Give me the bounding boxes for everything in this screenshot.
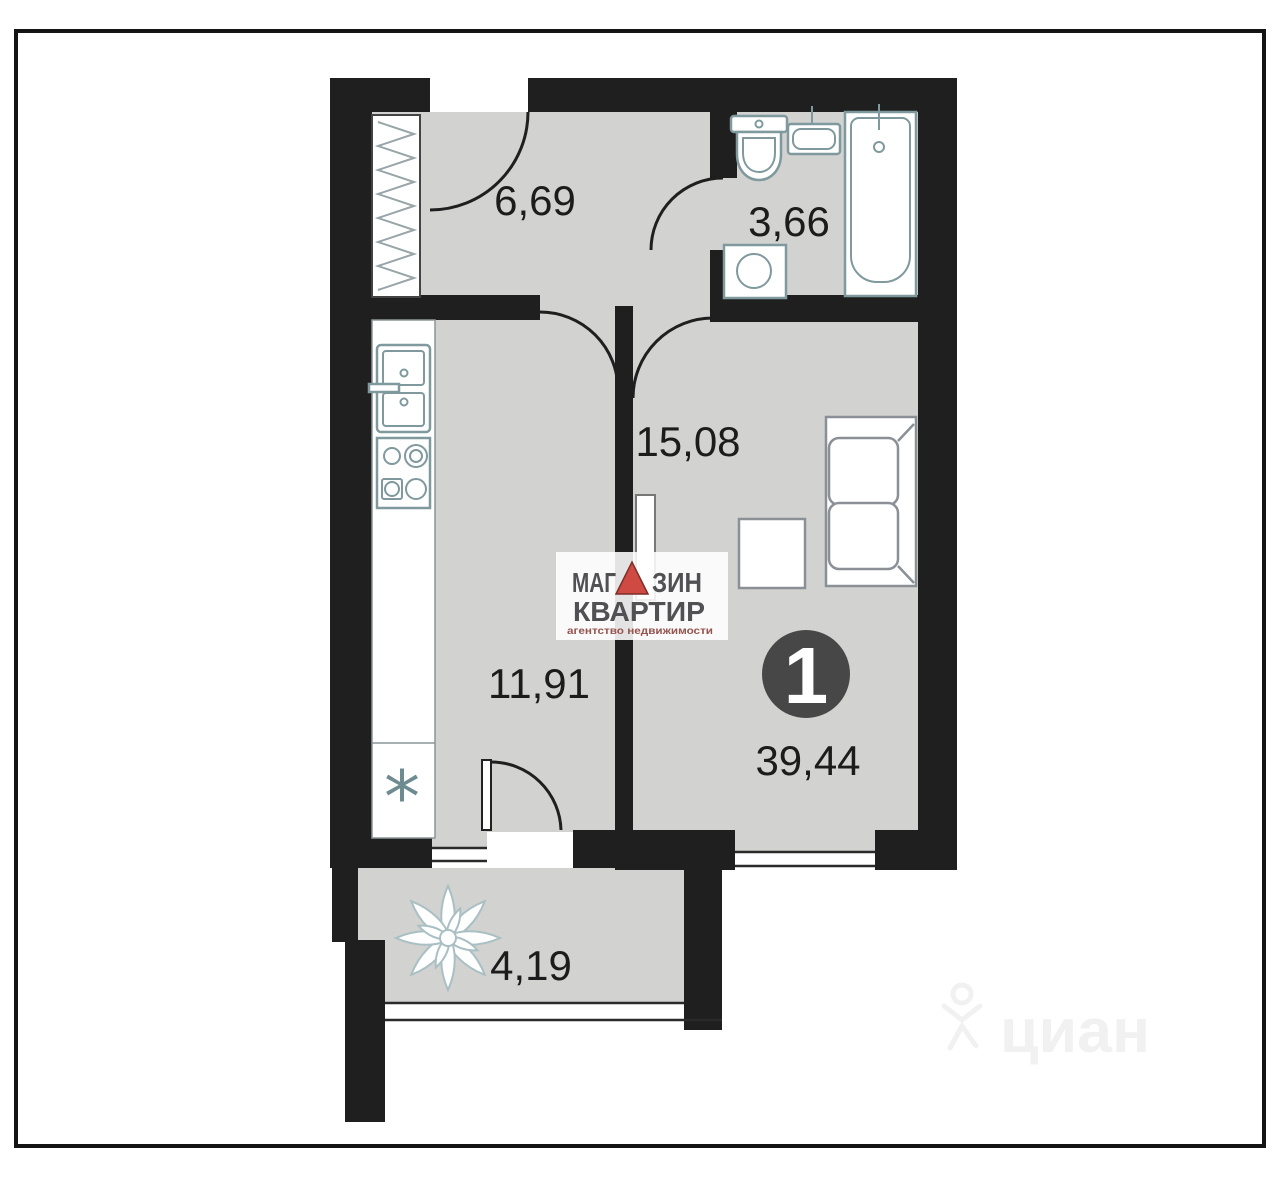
sink-icon (369, 345, 430, 432)
balcony-area-label: 4,19 (490, 942, 572, 989)
logo-word2: КВАРТИР (573, 596, 705, 627)
wall-balcony-left-upper (332, 868, 358, 942)
watermark-text: циан (1000, 997, 1150, 1066)
wall-balcony-left-lower (345, 940, 385, 1122)
boiler-mark: * (384, 755, 420, 839)
logo-word1-right: ЗИН (652, 567, 702, 598)
wall-left-outer (330, 78, 372, 868)
rooms-count-number: 1 (784, 631, 829, 720)
wall-hallway-bottom (330, 295, 540, 320)
window-sill (735, 830, 875, 851)
sofa-cushion (829, 503, 898, 569)
total-area-label: 39,44 (755, 737, 860, 784)
balcony-door-leaf (482, 760, 491, 830)
washing-machine-icon (724, 245, 786, 298)
wall-kitchen-bottom-stub (573, 830, 617, 868)
kitchen-fixtures: * (369, 320, 435, 839)
floor-plan-image: * (0, 0, 1280, 1182)
table-icon (739, 519, 805, 588)
balcony-glazing (385, 1003, 722, 1020)
wardrobe (372, 115, 420, 297)
watermark-person-icon (953, 985, 971, 1003)
wall-living-bottom-right (875, 830, 957, 870)
living-room-area-label: 15,08 (635, 418, 740, 465)
floor-plan-svg: * (0, 0, 1280, 1182)
bathtub-outline (845, 112, 916, 296)
agency-logo: МАГ ЗИН КВАРТИР агентство недвижимости (556, 552, 728, 640)
bathroom-area-label: 3,66 (748, 198, 830, 245)
living-room-window (735, 830, 875, 870)
sofa-icon (826, 417, 916, 586)
washing-machine-outline (724, 245, 786, 298)
bathtub-icon (845, 104, 916, 296)
stove-icon (377, 438, 430, 508)
kitchen-balcony-window (432, 830, 487, 868)
hallway-area-label: 6,69 (494, 177, 576, 224)
logo-word1-left: МАГ (572, 567, 616, 598)
cian-watermark: циан (944, 985, 1150, 1066)
sofa-cushion (829, 438, 898, 505)
toilet-tank (731, 116, 787, 132)
kitchen-area-label: 11,91 (488, 660, 590, 707)
window-sill (432, 830, 487, 847)
watermark-person-arms (944, 1006, 980, 1020)
plant-center (440, 930, 456, 946)
wall-balcony-right (684, 868, 722, 1030)
logo-tagline: агентство недвижимости (567, 626, 713, 637)
sink-tap (369, 384, 399, 392)
wall-living-bottom-left (615, 830, 735, 870)
wall-right-outer (918, 78, 957, 870)
wall-top-main (528, 78, 957, 112)
watermark-person-legs (950, 1026, 976, 1048)
plant-icon (396, 886, 500, 990)
